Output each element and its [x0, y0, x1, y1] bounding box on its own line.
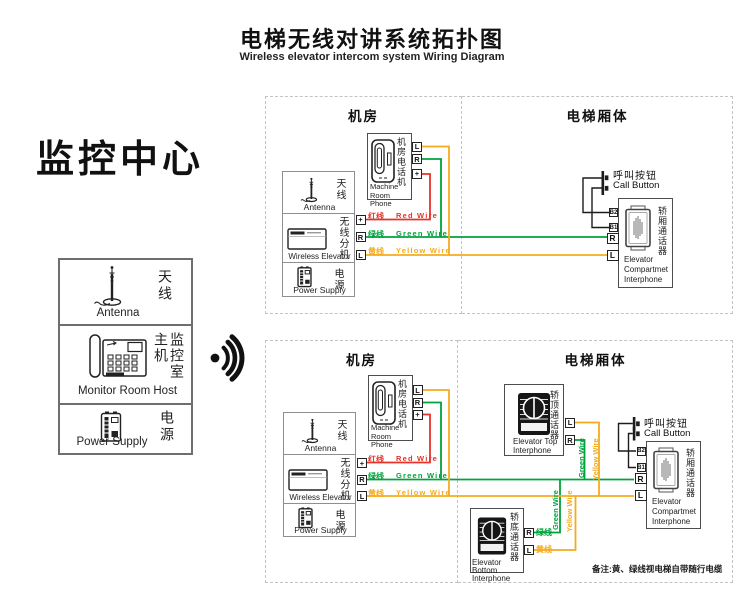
compartment-interphone-icon	[623, 205, 653, 251]
compartment-label-en1: Elevator	[624, 255, 668, 265]
terminal-l: L	[565, 418, 575, 428]
terminal-plus: +	[412, 169, 422, 179]
wireless-station-box-2: 天线 Antenna 无线分机 Wireless Elevator 电源 Pow…	[283, 412, 356, 537]
yellow-wire-label-zh: 黄线	[368, 246, 384, 257]
monitor-center-heading: 监控中心	[36, 128, 204, 183]
power-label-en: Power Supply	[283, 285, 356, 295]
monitor-host-label-en: Monitor Room Host	[60, 385, 195, 397]
machine-room-phone-box-1: 机房电话机 Machine Room Phone	[367, 133, 412, 200]
bottom-interphone-label-zh: 轿底通话器	[508, 512, 521, 562]
yellow-wire-vertical-label: Yellow Wire	[591, 438, 600, 480]
machine-phone-label-en2: Room Phone	[370, 192, 411, 209]
compartment-interphone-box-2: 轿厢通话器 Elevator Compartmet Interphone	[646, 441, 701, 529]
terminal-r: R	[356, 232, 366, 242]
compartment-label-en2: Compartmet	[624, 265, 668, 275]
green-wire-vertical-label: Green Wire	[577, 438, 586, 478]
divider	[60, 403, 191, 405]
antenna-icon	[88, 264, 128, 308]
terminal-l: L	[607, 250, 619, 261]
call-button-icon-top	[602, 171, 609, 195]
bottom-interphone-label-en1: Elevator Bottom	[472, 559, 523, 575]
antenna-label-zh: 天线	[333, 419, 348, 442]
call-button-label-en: Call Button	[644, 428, 690, 439]
terminal-r: R	[565, 435, 575, 445]
yellow-wire-label: 黄线 Yellow Wire	[368, 488, 451, 499]
green-wire-short-label: 绿线	[536, 527, 552, 538]
terminal-b2: B2	[637, 447, 646, 456]
call-button-icon-bottom	[633, 417, 640, 441]
red-wire-label: 红线 Red Wire	[368, 211, 438, 222]
yellow-wire-label: 黄线 Yellow Wire	[368, 246, 451, 257]
top-interphone-label-zh: 轿顶通话器	[548, 390, 561, 440]
yellow-wire-vertical-label: Yellow Wire	[565, 490, 574, 532]
elevator-top-interphone-box: 轿顶通话器 Elevator Top Interphone	[504, 384, 564, 456]
wall-phone-icon	[371, 139, 395, 183]
bottom-interphone-label-en2: Interphone	[472, 575, 523, 583]
terminal-plus: +	[357, 458, 367, 468]
antenna-label-en: Antenna	[283, 202, 356, 212]
wireless-extension-icon	[287, 228, 327, 250]
page-title: 电梯无线对讲系统拓扑图	[117, 22, 627, 54]
yellow-wire-label-en: Yellow Wire	[396, 246, 451, 257]
terminal-l: L	[412, 142, 422, 152]
top-interphone-label-en2: Interphone	[513, 447, 557, 456]
green-wire-label: 绿线 Green Wire	[368, 229, 448, 240]
red-wire-label-zh: 红线	[368, 454, 384, 465]
divider	[283, 262, 354, 263]
antenna-icon	[297, 176, 321, 204]
terminal-l: L	[413, 385, 423, 395]
wireless-extension-icon	[288, 469, 328, 491]
compartment-label-en2: Compartmet	[652, 507, 696, 517]
footnote: 备注:黄、绿线视电梯自带随行电缆	[592, 563, 722, 575]
monitor-host-label-zh: 监控室主机	[153, 332, 185, 380]
machine-phone-label-zh: 机房电话机	[395, 137, 408, 187]
green-wire-label-zh: 绿线	[368, 471, 384, 482]
yellow-wire-label-en: Yellow Wire	[396, 488, 451, 499]
green-wire-label-en: Green Wire	[396, 229, 448, 240]
green-wire-label-en: Green Wire	[396, 471, 448, 482]
terminal-b2: B2	[609, 208, 618, 217]
terminal-r: R	[635, 473, 647, 484]
terminal-l: L	[356, 250, 366, 260]
compartment-label-en1: Elevator	[652, 497, 696, 507]
machine-room-phone-box-2: 机房电话机 Machine Room Phone	[368, 375, 413, 441]
monitor-antenna-label-zh: 天线	[155, 269, 175, 303]
page-subtitle: Wireless elevator intercom system Wiring…	[117, 51, 627, 63]
green-wire-label: 绿线 Green Wire	[368, 471, 448, 482]
antenna-label-zh: 天线	[332, 178, 347, 201]
wireless-label-en: Wireless Elevator	[283, 252, 356, 261]
terminal-l: L	[357, 491, 367, 501]
terminal-r: R	[357, 475, 367, 485]
compartment-interphone-box-1: 轿厢通话器 Elevator Compartmet Interphone	[618, 198, 673, 288]
red-wire-label-zh: 红线	[368, 211, 384, 222]
red-wire-label-en: Red Wire	[396, 454, 438, 465]
terminal-r: R	[607, 233, 619, 244]
wiring-diagram-page: 电梯无线对讲系统拓扑图 Wireless elevator intercom s…	[0, 0, 750, 589]
call-button-leads-top	[583, 178, 609, 228]
terminal-plus: +	[356, 215, 366, 225]
terminal-plus: +	[413, 410, 423, 420]
antenna-icon	[298, 417, 322, 445]
compartment-label-en3: Interphone	[624, 275, 668, 285]
terminal-l: L	[635, 490, 647, 501]
divider	[60, 324, 191, 326]
machine-phone-label-en2: Room Phone	[371, 433, 412, 450]
wireless-label-en: Wireless Elevator	[284, 493, 357, 502]
red-wire-label: 红线 Red Wire	[368, 454, 438, 465]
compartment-label-zh: 轿厢通话器	[684, 448, 697, 498]
call-button-label-en: Call Button	[613, 180, 659, 191]
terminal-l: L	[524, 545, 534, 555]
monitor-power-label-en: Power Supply	[60, 436, 164, 448]
terminal-b1: B1	[609, 223, 618, 232]
terminal-r: R	[524, 528, 534, 538]
speaker-interphone-icon	[477, 515, 507, 557]
yellow-wire-short-label: 黄线	[536, 544, 552, 555]
speaker-interphone-icon	[517, 392, 551, 436]
monitor-antenna-label-en: Antenna	[68, 307, 168, 319]
green-wire-label-zh: 绿线	[536, 527, 552, 538]
power-label-en: Power Supply	[284, 525, 357, 535]
monitor-center-box: 天线 Antenna 监控室主机 Monitor Room Host	[58, 258, 193, 455]
green-wire-vertical-label: Green Wire	[551, 490, 560, 530]
divider	[284, 503, 355, 504]
terminal-r: R	[413, 398, 423, 408]
divider	[284, 454, 355, 455]
terminal-r: R	[412, 154, 422, 164]
wireless-station-box-1: 天线 Antenna 无线分机 Wireless Elevator 电源 Pow…	[282, 171, 355, 297]
terminal-b1: B1	[637, 463, 646, 472]
wireless-signal-icon	[208, 334, 254, 382]
compartment-label-zh: 轿厢通话器	[656, 206, 669, 256]
yellow-wire-label-zh: 黄线	[536, 544, 552, 555]
machine-phone-label-zh: 机房电话机	[396, 379, 409, 429]
elevator-bottom-interphone-box: 轿底通话器 Elevator Bottom Interphone	[470, 508, 524, 573]
wall-phone-icon	[372, 381, 396, 425]
red-wire-label-en: Red Wire	[396, 211, 438, 222]
yellow-wire-label-zh: 黄线	[368, 488, 384, 499]
antenna-label-en: Antenna	[284, 443, 357, 453]
green-wire-label-zh: 绿线	[368, 229, 384, 240]
compartment-interphone-icon	[651, 447, 681, 493]
compartment-label-en3: Interphone	[652, 517, 696, 527]
divider	[283, 213, 354, 214]
desk-phone-icon	[88, 332, 150, 380]
